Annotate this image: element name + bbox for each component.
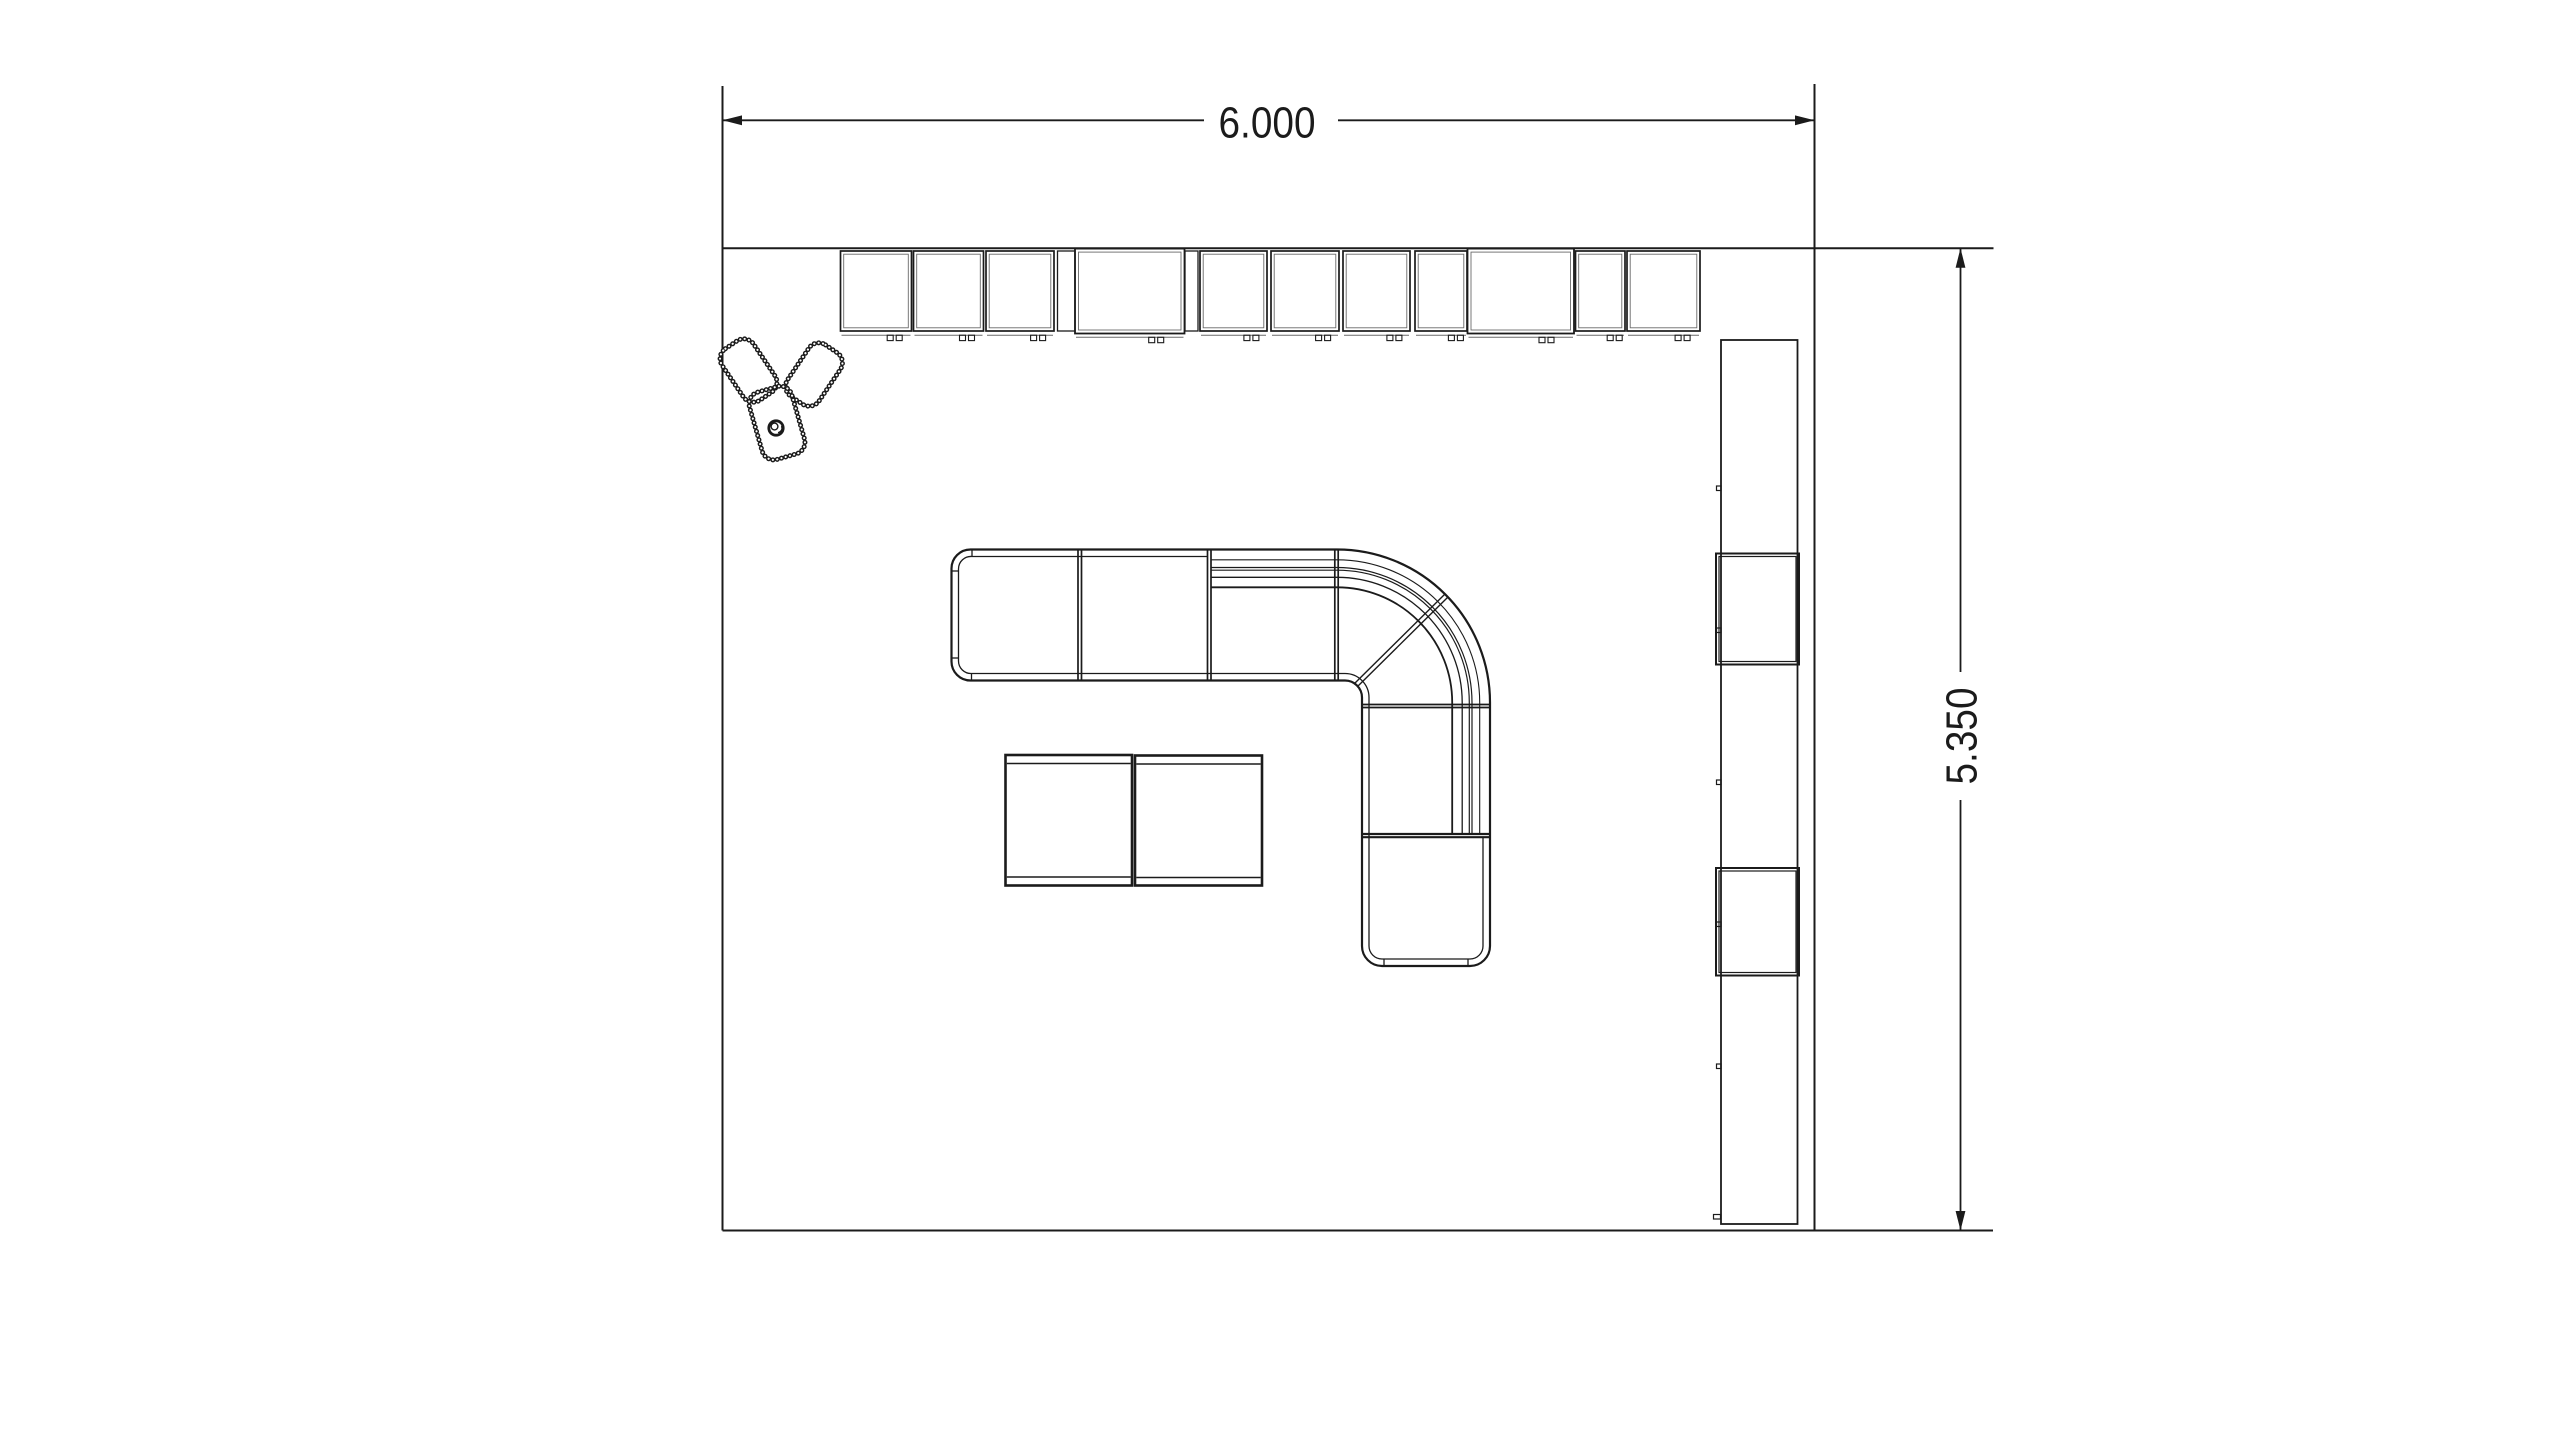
svg-text:6.000: 6.000 xyxy=(1219,99,1316,148)
svg-text:5.350: 5.350 xyxy=(1938,688,1987,785)
